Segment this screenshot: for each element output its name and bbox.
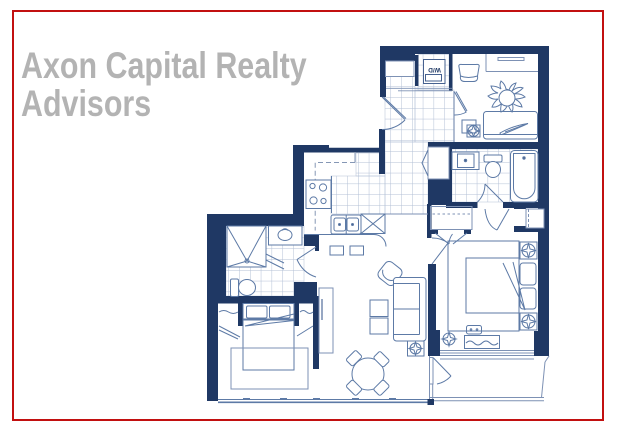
svg-text:W/D: W/D xyxy=(428,66,441,73)
